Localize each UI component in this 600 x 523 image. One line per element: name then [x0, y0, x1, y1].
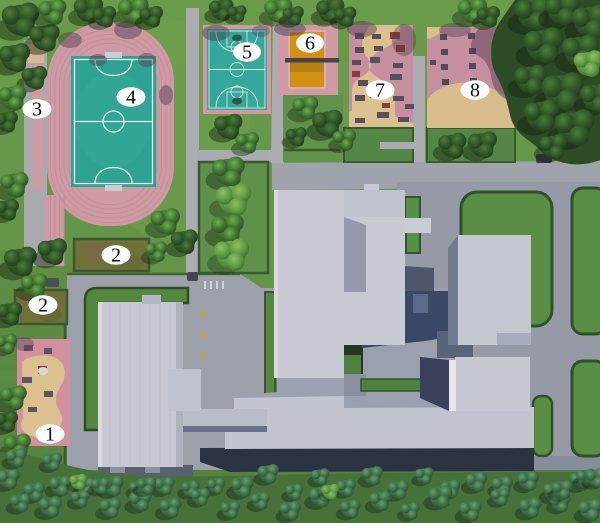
- svg-text:4: 4: [126, 87, 136, 109]
- svg-text:2: 2: [111, 245, 121, 267]
- svg-text:1: 1: [45, 424, 55, 446]
- svg-text:6: 6: [305, 33, 315, 55]
- svg-text:5: 5: [242, 42, 252, 64]
- svg-text:2: 2: [38, 295, 48, 317]
- svg-text:8: 8: [470, 80, 480, 102]
- svg-text:3: 3: [32, 99, 42, 121]
- svg-text:7: 7: [375, 80, 385, 102]
